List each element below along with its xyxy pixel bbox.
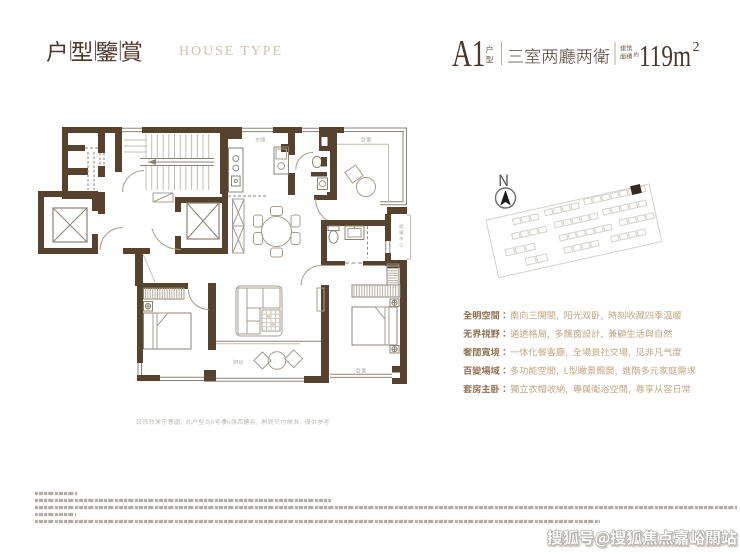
svg-text:A1: A1 [452, 33, 485, 75]
svg-text:HOUSE TYPE: HOUSE TYPE [179, 44, 283, 59]
svg-text:2: 2 [693, 40, 700, 55]
svg-text:119m: 119m [639, 39, 691, 73]
